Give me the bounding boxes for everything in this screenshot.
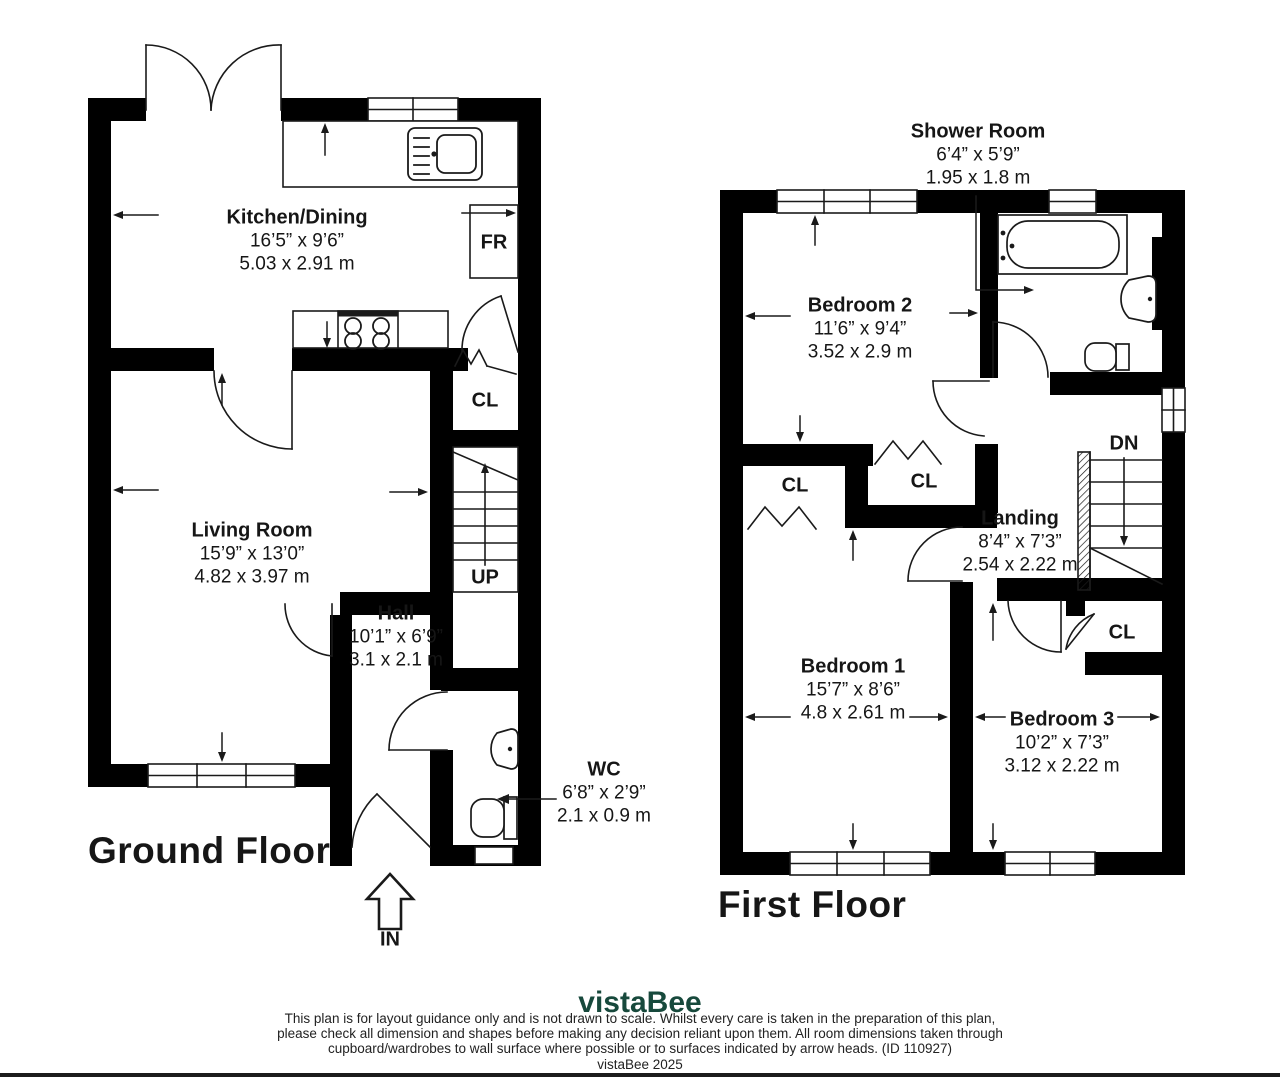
room-label-living: Living Room 15’9” x 13’0” 4.82 x 3.97 m — [191, 520, 312, 589]
room-name: Bedroom 1 — [801, 656, 906, 679]
window — [475, 847, 513, 864]
room-metric: 3.12 x 2.22 m — [1004, 755, 1119, 778]
room-name: Landing — [962, 508, 1077, 531]
dimension-arrow — [849, 530, 857, 560]
dimension-arrow — [796, 416, 804, 442]
window — [1049, 190, 1096, 213]
closet-label: CL — [782, 475, 809, 498]
room-metric: 2.54 x 2.22 m — [962, 554, 1077, 577]
floorplan-page: Kitchen/Dining 16’5” x 9’6” 5.03 x 2.91 … — [0, 0, 1280, 1077]
closet-label: CL — [911, 471, 938, 494]
window — [777, 190, 917, 213]
stairs-up-label: UP — [471, 567, 499, 590]
dimension-arrow — [989, 603, 997, 640]
closet-bifold-door — [875, 441, 941, 464]
room-name: Shower Room — [911, 121, 1045, 144]
disclaimer-line-1: This plan is for layout guidance only an… — [0, 1011, 1280, 1027]
room-label-kitchen: Kitchen/Dining 16’5” x 9’6” 5.03 x 2.91 … — [226, 207, 367, 276]
dimension-arrow — [989, 824, 997, 850]
room-imperial: 6’8” x 2’9” — [557, 782, 651, 805]
room-label-bedroom3: Bedroom 3 10’2” x 7’3” 3.12 x 2.22 m — [1004, 709, 1119, 778]
closet-door-bedroom3 — [1066, 614, 1094, 649]
door-bedroom2 — [933, 381, 989, 436]
dimension-arrow — [950, 309, 978, 317]
room-imperial: 10’1” x 6’9” — [349, 626, 443, 649]
room-metric: 5.03 x 2.91 m — [226, 253, 367, 276]
entrance-label: IN — [380, 929, 400, 952]
bath-icon — [998, 215, 1127, 274]
room-metric: 4.82 x 3.97 m — [191, 566, 312, 589]
room-imperial: 15’9” x 13’0” — [191, 543, 312, 566]
fridge-label: FR — [481, 232, 508, 255]
room-name: Kitchen/Dining — [226, 207, 367, 230]
room-name: WC — [557, 759, 651, 782]
closet-label: CL — [472, 390, 499, 413]
door-living-hall — [285, 604, 332, 656]
bottom-border — [0, 1073, 1280, 1077]
room-metric: 1.95 x 1.8 m — [911, 167, 1045, 190]
room-name: Living Room — [191, 520, 312, 543]
stairs-down-icon — [1078, 452, 1162, 590]
dimension-arrow — [745, 713, 790, 721]
room-metric: 3.1 x 2.1 m — [349, 649, 443, 672]
window — [1005, 852, 1095, 875]
ground-floor-title: Ground Floor — [88, 830, 330, 872]
closet-bifold-door — [748, 507, 816, 529]
window — [1162, 388, 1185, 432]
dimension-arrow — [113, 486, 158, 494]
room-imperial: 8’4” x 7’3” — [962, 531, 1077, 554]
door-bedroom3 — [1008, 601, 1061, 652]
dimension-arrow — [910, 713, 948, 721]
dimension-arrow — [390, 488, 428, 496]
shower-toilet-icon — [1085, 343, 1129, 371]
room-name: Bedroom 3 — [1004, 709, 1119, 732]
door-shower-room — [993, 322, 1048, 377]
room-name: Bedroom 2 — [808, 295, 913, 318]
window — [790, 852, 930, 875]
wc-basin-icon — [491, 729, 518, 769]
door-bedroom1 — [908, 527, 962, 581]
window — [368, 98, 458, 121]
room-label-shower: Shower Room 6’4” x 5’9” 1.95 x 1.8 m — [911, 121, 1045, 190]
front-door — [352, 794, 430, 847]
room-imperial: 16’5” x 9’6” — [226, 230, 367, 253]
dimension-arrow — [811, 215, 819, 245]
dimension-arrow — [218, 733, 226, 762]
door-rear-lobby — [462, 296, 518, 352]
hob-icon — [338, 311, 398, 349]
dimension-arrow — [975, 713, 1005, 721]
room-metric: 4.8 x 2.61 m — [801, 702, 906, 725]
window — [148, 764, 295, 787]
room-name: Hall — [349, 603, 443, 626]
dimension-arrow — [849, 824, 857, 850]
disclaimer-line-3: cupboard/wardrobes to wall surface where… — [0, 1041, 1280, 1057]
room-imperial: 6’4” x 5’9” — [911, 144, 1045, 167]
room-imperial: 10’2” x 7’3” — [1004, 732, 1119, 755]
room-label-hall: Hall 10’1” x 6’9” 3.1 x 2.1 m — [349, 603, 443, 672]
room-label-wc: WC 6’8” x 2’9” 2.1 x 0.9 m — [557, 759, 651, 828]
dimension-arrow — [113, 211, 158, 219]
room-label-landing: Landing 8’4” x 7’3” 2.54 x 2.22 m — [962, 508, 1077, 577]
disclaimer-line-2: please check all dimension and shapes be… — [0, 1026, 1280, 1042]
entrance-arrow-icon — [367, 874, 413, 929]
room-metric: 2.1 x 0.9 m — [557, 805, 651, 828]
dimension-arrow — [1118, 713, 1160, 721]
shower-basin-icon — [1121, 276, 1156, 322]
room-imperial: 11’6” x 9’4” — [808, 318, 913, 341]
french-doors — [146, 45, 281, 110]
dimension-arrow — [745, 312, 790, 320]
room-metric: 3.52 x 2.9 m — [808, 341, 913, 364]
room-imperial: 15’7” x 8’6” — [801, 679, 906, 702]
wc-toilet-icon — [471, 797, 517, 839]
stairs-down-label: DN — [1110, 433, 1139, 456]
first-floor-title: First Floor — [718, 884, 906, 926]
room-label-bedroom1: Bedroom 1 15’7” x 8’6” 4.8 x 2.61 m — [801, 656, 906, 725]
closet-label: CL — [1109, 622, 1136, 645]
ground-floor-plan — [88, 45, 556, 929]
door-wc — [389, 692, 447, 750]
copyright: vistaBee 2025 — [0, 1057, 1280, 1073]
room-label-bedroom2: Bedroom 2 11’6” x 9’4” 3.52 x 2.9 m — [808, 295, 913, 364]
